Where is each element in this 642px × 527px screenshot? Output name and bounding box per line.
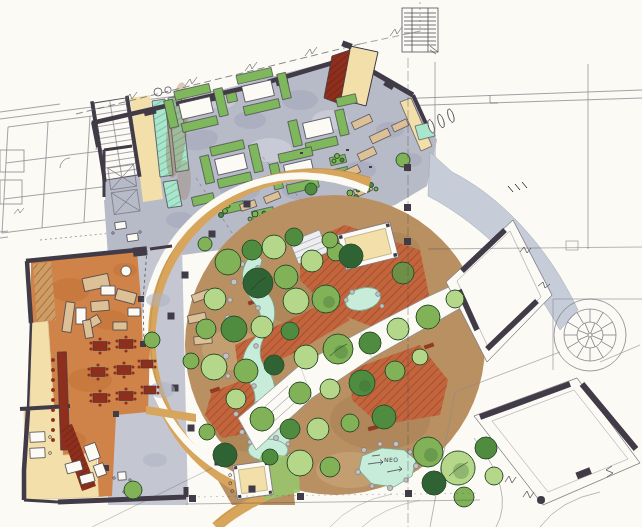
pond-label: NEO [384, 456, 399, 463]
column [121, 266, 131, 276]
site-plan-screenshot: NEO [0, 0, 642, 527]
site-plan-drawing: NEO [0, 0, 642, 527]
watercolor-streak-2 [177, 160, 191, 200]
